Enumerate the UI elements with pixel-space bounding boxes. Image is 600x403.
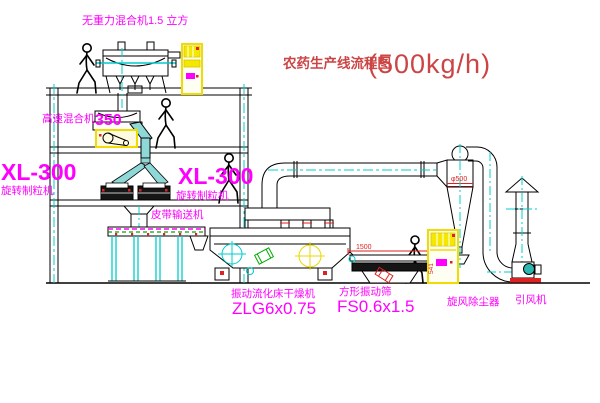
- dryer-supports: [215, 268, 332, 281]
- dust-collector-cabinet-top: [182, 44, 202, 94]
- dim-cyclone-diameter: φ500: [451, 176, 467, 183]
- label-fan: 引风机: [515, 293, 547, 306]
- granulator-right: [138, 183, 170, 200]
- cabinet-marking: [186, 73, 195, 79]
- indicator-dot: [452, 234, 455, 237]
- cad-drawing: 农药生产线流程图 (500kg/h) 无重力混合机1.5 立方 高速混合机 35…: [0, 0, 600, 403]
- page-title-capacity: (500kg/h): [368, 49, 491, 79]
- exhaust-duct: [262, 161, 450, 208]
- label-high-speed-mixer: 高速混合机: [42, 112, 95, 125]
- dryer-ports: [280, 220, 334, 228]
- label-high-speed-mixer-model: 350: [95, 112, 122, 129]
- label-dryer-model: ZLG6x0.75: [232, 299, 316, 318]
- label-granulator-right: 旋转制粒机: [176, 189, 229, 202]
- label-cyclone: 旋风除尘器: [447, 295, 500, 308]
- no-gravity-mixer: [96, 42, 180, 93]
- label-screen-model: FS0.6x1.5: [337, 297, 415, 316]
- label-granulator-left-model: XL-300: [1, 159, 76, 185]
- label-granulator-right-model: XL-300: [178, 163, 253, 189]
- fluid-bed-dryer: [210, 208, 358, 280]
- worker-figure-1: [77, 44, 96, 93]
- conveyor-legs: [112, 236, 182, 281]
- process-flow-diagram: 农药生产线流程图 (500kg/h) 无重力混合机1.5 立方 高速混合机 35…: [0, 0, 600, 403]
- induced-draft-fan: [510, 262, 541, 283]
- label-no-gravity-mixer: 无重力混合机1.5 立方: [82, 13, 188, 27]
- cabinet-marking: [436, 259, 447, 266]
- worker-figure-2: [156, 99, 175, 148]
- dim-screen-height: 541: [428, 263, 435, 274]
- granulator-left: [101, 183, 133, 200]
- granulator-discharge-duct: [124, 206, 154, 230]
- indicator-dot: [196, 47, 199, 50]
- belt-conveyor: [108, 227, 208, 281]
- dust-collector-cabinet-bottom: [428, 230, 458, 283]
- y-splitter-chute: [112, 158, 168, 186]
- label-granulator-left: 旋转制粒机: [1, 184, 54, 197]
- label-belt-conveyor: 皮带输送机: [151, 208, 204, 221]
- dim-screen-length: 1500: [356, 244, 372, 251]
- vibrating-screen: [348, 248, 440, 283]
